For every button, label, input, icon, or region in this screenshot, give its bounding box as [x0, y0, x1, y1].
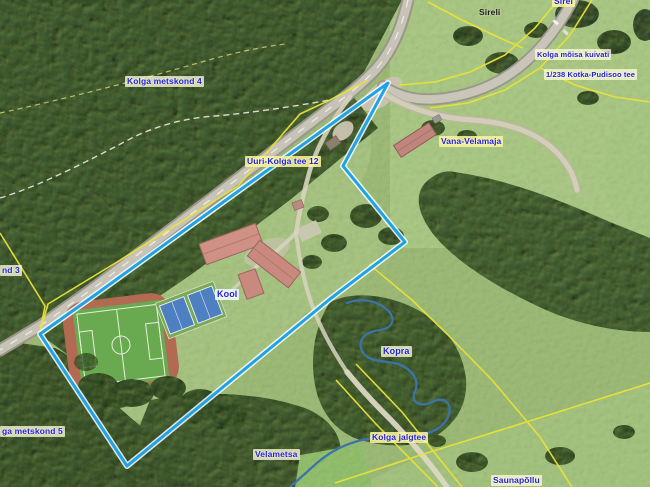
label-uuri-kolga-tee-12: Uuri-Kolga tee 12 — [245, 156, 321, 167]
label-sireli: Sireli — [477, 7, 502, 18]
map-viewport[interactable]: Sirel Sireli Kolga mõisa kuivati 1/238 K… — [0, 0, 650, 487]
label-saunapollu: Saunapõllu — [491, 475, 542, 486]
label-kool: Kool — [215, 289, 239, 300]
label-sirel: Sirel — [552, 0, 575, 7]
label-kolga-jalgtee: Kolga jalgtee — [370, 432, 428, 443]
label-kolga-moisa-kuivati: Kolga mõisa kuivati — [535, 49, 611, 60]
label-velametsa: Velametsa — [253, 449, 300, 460]
label-kotka-pudisoo-tee: 1/238 Kotka-Pudisoo tee — [544, 69, 637, 80]
label-metskond-edge-left: nd 3 — [0, 265, 22, 276]
label-kolga-metskond-5: ga metskond 5 — [0, 426, 65, 437]
label-kolga-metskond-4: Kolga metskond 4 — [125, 76, 204, 87]
label-kopra: Kopra — [381, 346, 412, 357]
label-vana-velamaja: Vana-Velamaja — [439, 136, 503, 147]
